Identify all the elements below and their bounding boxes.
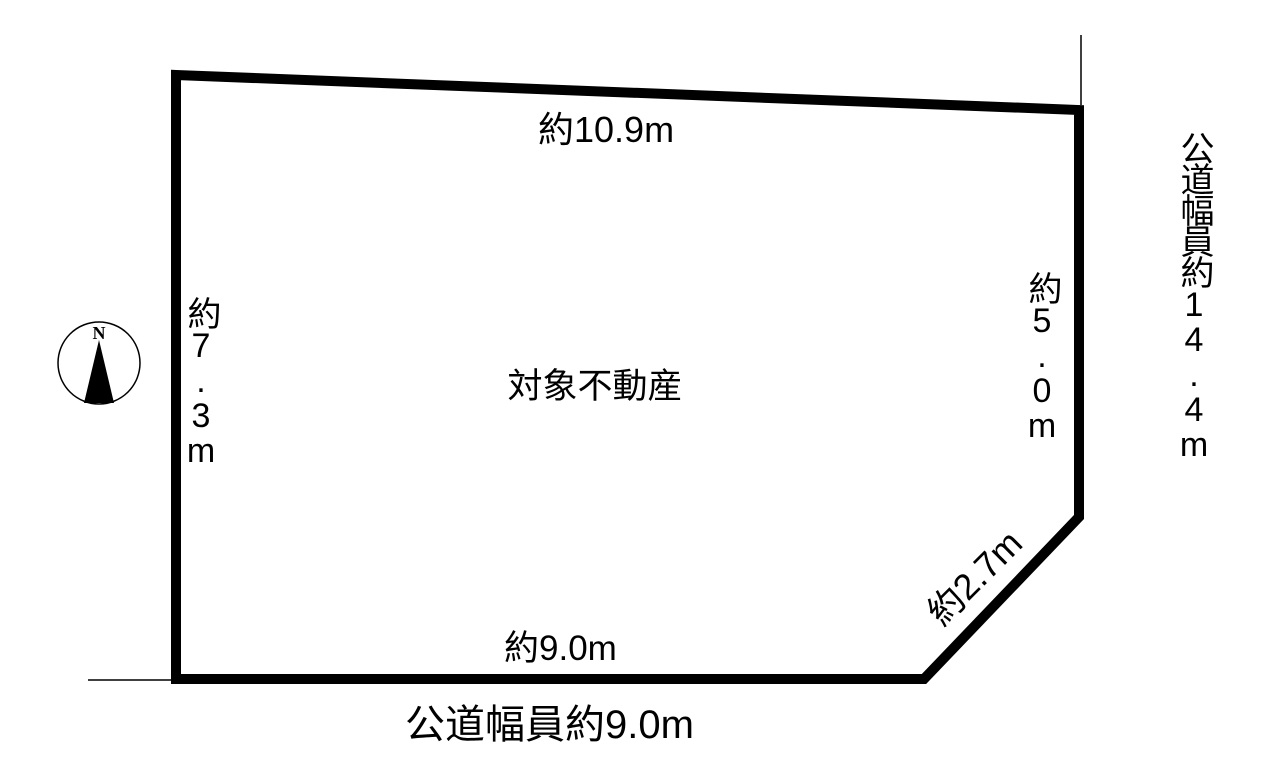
dimension-top: 約10.9m [538, 112, 674, 148]
subject-property-label: 対象不動産 [507, 369, 682, 404]
dimension-bottom: 約9.0m [504, 631, 617, 666]
dimension-right: 約5.0m [1025, 271, 1059, 442]
dimension-left: 約7.3m [184, 296, 218, 467]
land-plot-diagram: N 約10.9m 約7.3m 約5.0m 約2.7m 約9.0m 対象不動産 公… [0, 0, 1270, 784]
road-width-label-right: 公道幅員約14.4m [1177, 131, 1211, 461]
compass-needle-icon [84, 340, 114, 403]
compass-north-label: N [93, 323, 106, 343]
road-width-label-bottom: 公道幅員約9.0m [405, 705, 694, 745]
